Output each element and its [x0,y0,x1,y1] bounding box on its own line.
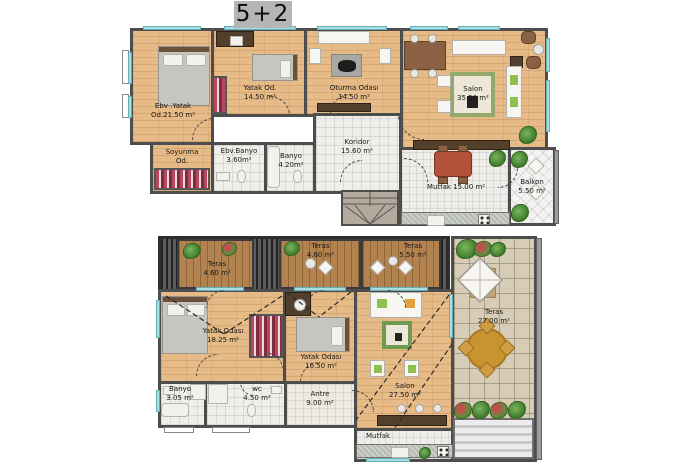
window [546,80,550,132]
dining-chair [410,34,419,43]
parasol [456,256,504,304]
terrace-railing [536,238,542,460]
dining-chair [410,69,419,78]
dining-table [404,41,446,70]
window [370,287,428,291]
label-bath-lower: Banyo3.05 m² [161,385,199,403]
dining-chair [428,34,437,43]
label-living-room-lower: Salon27.50 m² [380,382,430,400]
staircase [341,190,399,226]
label-terrace-3: Teras5.50 m² [387,242,439,260]
kitchen-counter [356,444,453,458]
kitchen-table [434,151,472,177]
window-bay [212,427,250,433]
sofa [318,31,370,44]
coffee-table [533,44,544,55]
breakfast-bar [377,415,447,426]
label-bedroom-3: Yatak Odası18.25 m² [190,327,256,345]
sink [216,172,230,181]
chair [458,145,468,152]
label-sitting-room: Oturma Odası14.50 m² [314,84,394,102]
label-dressing: SoyunmaOd. [156,148,208,166]
bed [296,317,350,352]
bed [158,46,210,106]
label-bedroom-2: Yatak Od.14.50 m² [224,84,296,102]
sofa [452,40,506,55]
bar-stool [415,404,424,413]
window [156,390,160,412]
toilet [247,404,256,417]
window [128,52,132,84]
label-balcony: Balkon5.50 m² [512,178,552,196]
plan-title: 5+2 [234,1,292,28]
armchair [370,360,385,377]
label-terrace-1: Teras4.60 m² [188,260,246,278]
bathtub [161,403,189,417]
label-kitchen-lower: Mutfak [366,432,402,441]
armchair [309,48,321,64]
label-terrace-big: Teras27.00 m² [467,308,521,326]
window [458,26,500,30]
bed [252,54,298,81]
chair [438,145,448,152]
sliding-door [449,294,453,338]
window [366,458,410,462]
window [546,38,550,72]
window [143,26,201,30]
dining-chair [428,69,437,78]
window [317,26,387,30]
window-bay [164,427,194,433]
floor-plan-canvas: 5+2 Ebv .YatakOd.21.50 m² Yatak Od.14.50… [0,0,700,466]
toilet [293,170,302,183]
shower [208,384,228,404]
label-wc: wc4.50 m² [236,385,278,403]
armchair [379,48,391,64]
window [156,300,160,338]
label-terrace-2: Teras4.60 m² [293,242,348,260]
bar-stool [397,404,406,413]
label-bath-upper: Banyo4.20m² [272,152,310,170]
kitchen-counter [401,212,510,225]
label-corridor: Koridor15.60 m² [324,138,390,156]
label-entry-hall: Antre9.00 m² [295,390,345,408]
terrace-decking [453,418,534,459]
armchair [521,31,536,44]
bar-stool [433,404,442,413]
armchair [404,360,419,377]
armchair [526,56,541,69]
window [410,26,448,30]
label-bedroom-4: Yatak Odası10.50 m² [292,353,350,371]
desk [216,31,254,47]
window [128,96,132,118]
sofa [506,66,522,118]
play-rug [382,321,412,349]
label-master-bedroom: Ebv .YatakOd.21.50 m² [138,102,208,120]
balcony-railing [554,150,559,224]
wardrobe [154,168,210,190]
label-master-bath: Ebv.Banyo3.60m² [214,147,264,165]
bed [162,296,208,354]
toilet [237,170,246,183]
tv-table [331,54,362,77]
label-kitchen-upper: Mutfak 15.00 m² [414,183,498,192]
label-living-room-upper: Salon35.50 m² [445,85,501,103]
